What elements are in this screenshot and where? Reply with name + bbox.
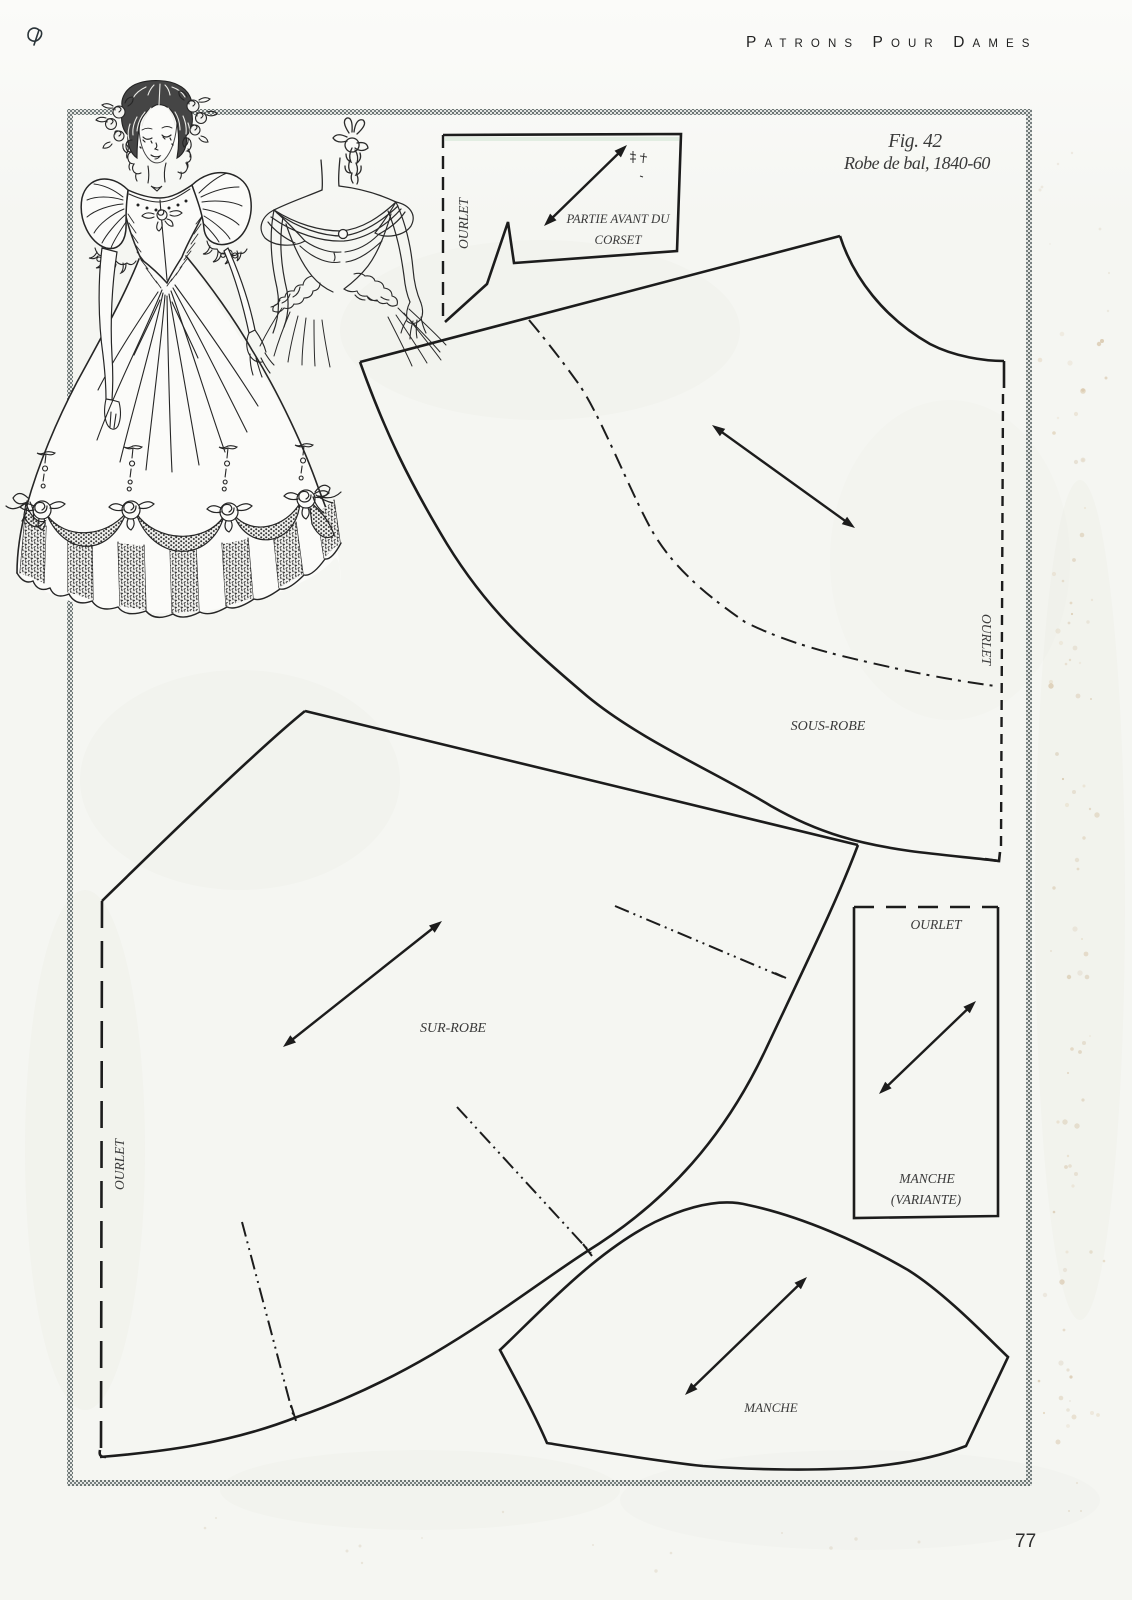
svg-text:MANCHE: MANCHE <box>743 1400 798 1415</box>
svg-text:PARTIE AVANT DU: PARTIE AVANT DU <box>566 212 671 226</box>
svg-text:OURLET: OURLET <box>456 197 471 249</box>
svg-text:OURLET: OURLET <box>910 917 962 932</box>
svg-text:CORSET: CORSET <box>595 233 643 247</box>
svg-text:77: 77 <box>1015 1531 1036 1552</box>
svg-text:SOUS-ROBE: SOUS-ROBE <box>791 719 866 734</box>
svg-text:(VARIANTE): (VARIANTE) <box>891 1192 962 1207</box>
svg-text:Robe de bal, 1840-60: Robe de bal, 1840-60 <box>843 153 990 173</box>
svg-text:MANCHE: MANCHE <box>898 1171 955 1186</box>
svg-text:Fig. 42: Fig. 42 <box>887 131 942 152</box>
svg-text:OURLET: OURLET <box>112 1138 127 1190</box>
svg-text:SUR-ROBE: SUR-ROBE <box>420 1021 487 1036</box>
svg-text:OURLET: OURLET <box>979 614 994 666</box>
